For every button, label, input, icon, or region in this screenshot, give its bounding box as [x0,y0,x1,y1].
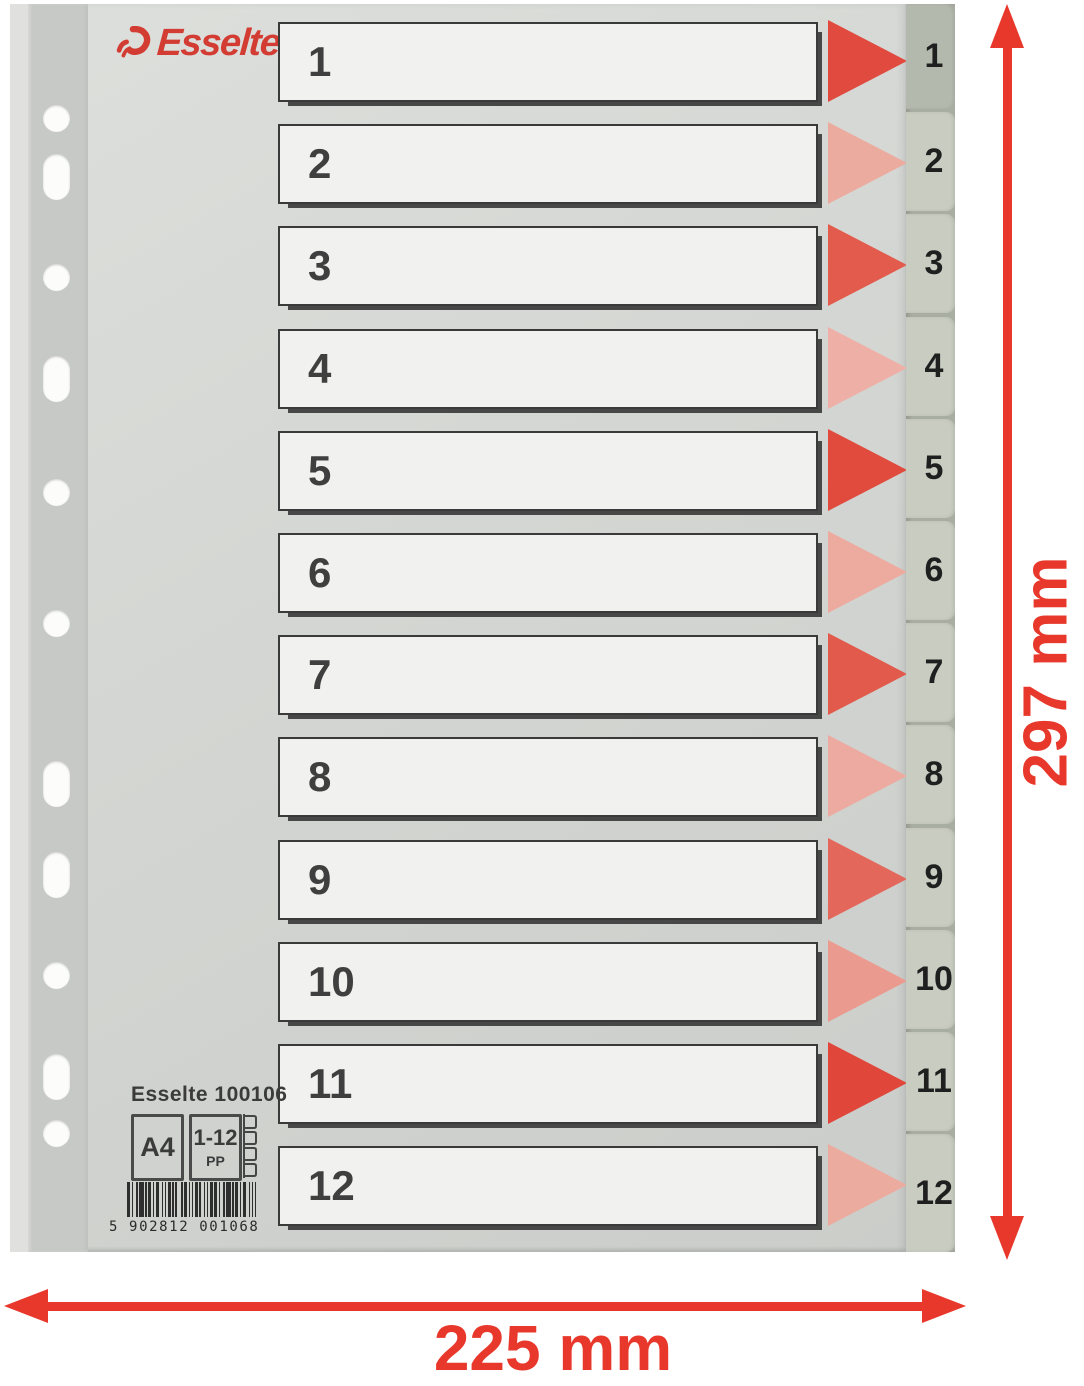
tab-number: 2 [918,142,944,181]
arrow-down-icon [990,1216,1024,1260]
index-number: 12 [308,1162,355,1210]
red-arrow-triangle-icon [828,735,907,817]
index-number: 10 [308,958,355,1006]
index-number: 9 [308,856,331,904]
barcode [127,1182,256,1217]
sheet-left-edge [10,4,28,1252]
punch-hole [43,264,70,291]
format-text: A4 [140,1132,175,1163]
product-code: Esselte 100106 [131,1083,287,1107]
punch-hole [43,761,70,807]
writable-label-box: 8 [278,737,818,817]
tab-12: 12 [906,1134,955,1252]
index-number: 3 [308,242,331,290]
esselte-swoosh-icon [116,26,152,62]
red-arrow-triangle-icon [828,327,907,409]
tab-number: 1 [918,37,944,76]
red-arrow-triangle-icon [828,1144,907,1226]
red-arrow-triangle-icon [828,429,907,511]
writable-label-box: 11 [278,1044,818,1124]
tab-9: 9 [906,828,955,927]
tab-number: 12 [908,1174,953,1213]
tab-stack-icon [242,1114,258,1178]
tab-number: 9 [918,858,944,897]
tab-11: 11 [906,1032,955,1131]
writable-label-box: 12 [278,1146,818,1226]
tab-number: 4 [918,347,944,386]
brand-wordmark: Esselte [155,22,281,65]
index-divider-sheet: Esselte 123456789101112 Esselte 100106 A… [10,4,906,1252]
tab-number: 3 [918,244,944,283]
tab-column: 123456789101112 [906,4,955,1252]
punch-hole [43,852,70,898]
tab-8: 8 [906,725,955,824]
barcode-digits: 5 902812 001068 [109,1219,259,1235]
writable-label-box: 2 [278,124,818,204]
arrow-up-icon [990,4,1024,48]
writable-label-box: 6 [278,533,818,613]
index-number: 1 [308,38,331,86]
tab-number: 6 [918,551,944,590]
index-number: 5 [308,447,331,495]
writable-label-box: 7 [278,635,818,715]
width-dimension-label: 225 mm [434,1311,672,1385]
arrow-left-icon [4,1289,48,1323]
index-number: 11 [308,1060,352,1108]
red-arrow-triangle-icon [828,940,907,1022]
index-number: 7 [308,651,331,699]
height-dimension-label: 297 mm [1011,557,1082,788]
tab-2: 2 [906,112,955,211]
writable-label-box: 9 [278,840,818,920]
tab-range-badge: 1-12 PP [189,1114,242,1181]
index-number: 2 [308,140,331,188]
punch-hole [43,356,70,402]
red-arrow-triangle-icon [828,838,907,920]
width-arrow-line [44,1302,924,1311]
tab-number: 5 [918,449,944,488]
tab-1: 1 [906,4,955,109]
tab-4: 4 [906,317,955,416]
tab-7: 7 [906,623,955,722]
tab-5: 5 [906,419,955,518]
product-photo: Esselte 123456789101112 Esselte 100106 A… [0,0,1084,1386]
red-arrow-triangle-icon [828,122,907,204]
red-arrow-triangle-icon [828,1042,907,1124]
tab-3: 3 [906,214,955,313]
material-text: PP [206,1153,225,1169]
writable-label-box: 5 [278,431,818,511]
tab-10: 10 [906,930,955,1029]
index-number: 4 [308,345,331,393]
red-arrow-triangle-icon [828,633,907,715]
index-number: 6 [308,549,331,597]
writable-label-box: 4 [278,329,818,409]
punch-hole [43,154,70,200]
red-arrow-triangle-icon [828,224,907,306]
punch-hole [43,962,70,989]
tab-number: 7 [918,653,944,692]
esselte-logo: Esselte [116,22,280,65]
format-badge: A4 [131,1114,184,1181]
tab-range-text: 1-12 [193,1127,237,1149]
punch-hole [43,479,70,506]
punch-margin [28,4,88,1252]
tab-6: 6 [906,521,955,620]
writable-label-box: 10 [278,942,818,1022]
punch-hole [43,1054,70,1100]
arrow-right-icon [922,1289,966,1323]
writable-label-box: 3 [278,226,818,306]
writable-label-box: 1 [278,22,818,102]
tab-number: 8 [918,755,944,794]
barcode-bar [255,1182,257,1217]
tab-number: 11 [909,1062,952,1101]
punch-hole [43,105,70,132]
red-arrow-triangle-icon [828,531,907,613]
punch-hole [43,610,70,637]
punch-hole [43,1120,70,1147]
red-arrow-triangle-icon [828,20,907,102]
index-number: 8 [308,753,331,801]
tab-number: 10 [908,960,953,999]
